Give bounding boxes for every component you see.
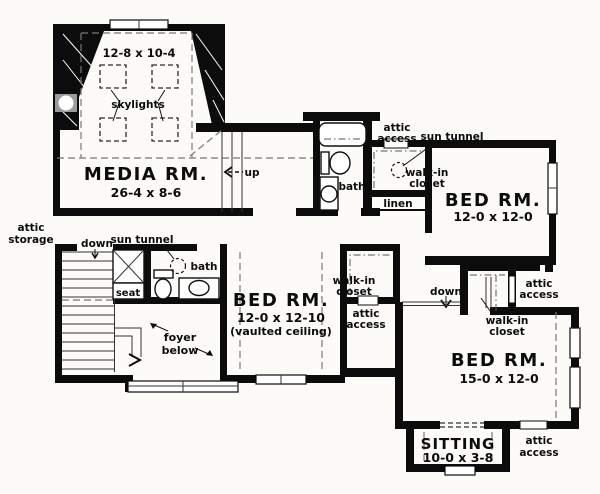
attic-access-label: access <box>346 319 385 331</box>
bathtub <box>319 123 366 146</box>
bed2-room-label: BED RM. <box>233 290 329 311</box>
bath-label: bath <box>190 261 217 273</box>
sitting-opening <box>440 421 484 429</box>
walls <box>53 24 579 472</box>
toilet-tank <box>154 270 173 278</box>
floor-plan-page: 12-8 x 10-4 skylights MEDIA RM. 26-4 x 8… <box>0 0 600 494</box>
media-room-dims: 26-4 x 8-6 <box>111 185 182 200</box>
linen-label: linen <box>383 198 412 210</box>
sink <box>189 281 209 296</box>
window <box>570 328 580 358</box>
skylight <box>100 118 126 141</box>
bed2-room-note: (vaulted ceiling) <box>230 325 332 338</box>
up-label: up <box>245 167 260 179</box>
bed3-room-label: BED RM. <box>451 350 547 371</box>
skylight <box>152 118 178 141</box>
window <box>445 466 475 475</box>
toilet <box>155 279 171 299</box>
attic-access-label: attic <box>526 435 553 447</box>
bed2-room-dims: 12-0 x 12-10 <box>237 310 325 325</box>
attic-storage-label: storage <box>8 234 53 246</box>
walk-in-closet-label: closet <box>489 326 524 338</box>
skylight <box>152 65 178 88</box>
down-label: down <box>81 238 113 250</box>
bath-label: bath <box>338 181 365 193</box>
seat-label: seat <box>116 288 140 299</box>
walk-in-closet-label: closet <box>336 286 371 298</box>
attic-access-label: access <box>377 133 416 145</box>
sink <box>321 186 337 202</box>
foyer-below-label: below <box>162 344 199 357</box>
sun-tunnel-label: sun tunnel <box>420 131 483 143</box>
sun-tunnel-icon <box>171 259 186 274</box>
attic-storage-label: attic <box>18 222 45 234</box>
stair-direction-arrow <box>129 354 140 366</box>
sun-tunnel-label: sun tunnel <box>110 234 173 246</box>
attic-access-label: access <box>519 289 558 301</box>
toilet-tank <box>321 152 329 174</box>
down-label: down <box>430 286 462 298</box>
attic-access-panel <box>509 276 515 303</box>
attic-access-label: access <box>519 447 558 459</box>
sitting-room-dims: 10-0 x 3-8 <box>423 450 494 465</box>
floor-plan: 12-8 x 10-4 skylights MEDIA RM. 26-4 x 8… <box>0 0 600 494</box>
bed1-room-dims: 12-0 x 12-0 <box>453 209 533 224</box>
media-skylight-area-dims: 12-8 x 10-4 <box>103 46 176 60</box>
bed3-room-dims: 15-0 x 12-0 <box>459 371 539 386</box>
window <box>570 367 580 408</box>
text-labels: 12-8 x 10-4 skylights MEDIA RM. 26-4 x 8… <box>8 46 558 465</box>
sun-tunnel-skylight-icon <box>59 96 74 111</box>
skylight <box>100 65 126 88</box>
walk-in-closet-label: closet <box>409 178 444 190</box>
skylights-label: skylights <box>111 99 165 111</box>
bed1-room-label: BED RM. <box>445 190 541 211</box>
attic-access-panel <box>520 421 547 429</box>
foyer-below-label: foyer <box>164 331 197 344</box>
media-room-label: MEDIA RM. <box>84 164 208 185</box>
toilet <box>330 152 350 174</box>
